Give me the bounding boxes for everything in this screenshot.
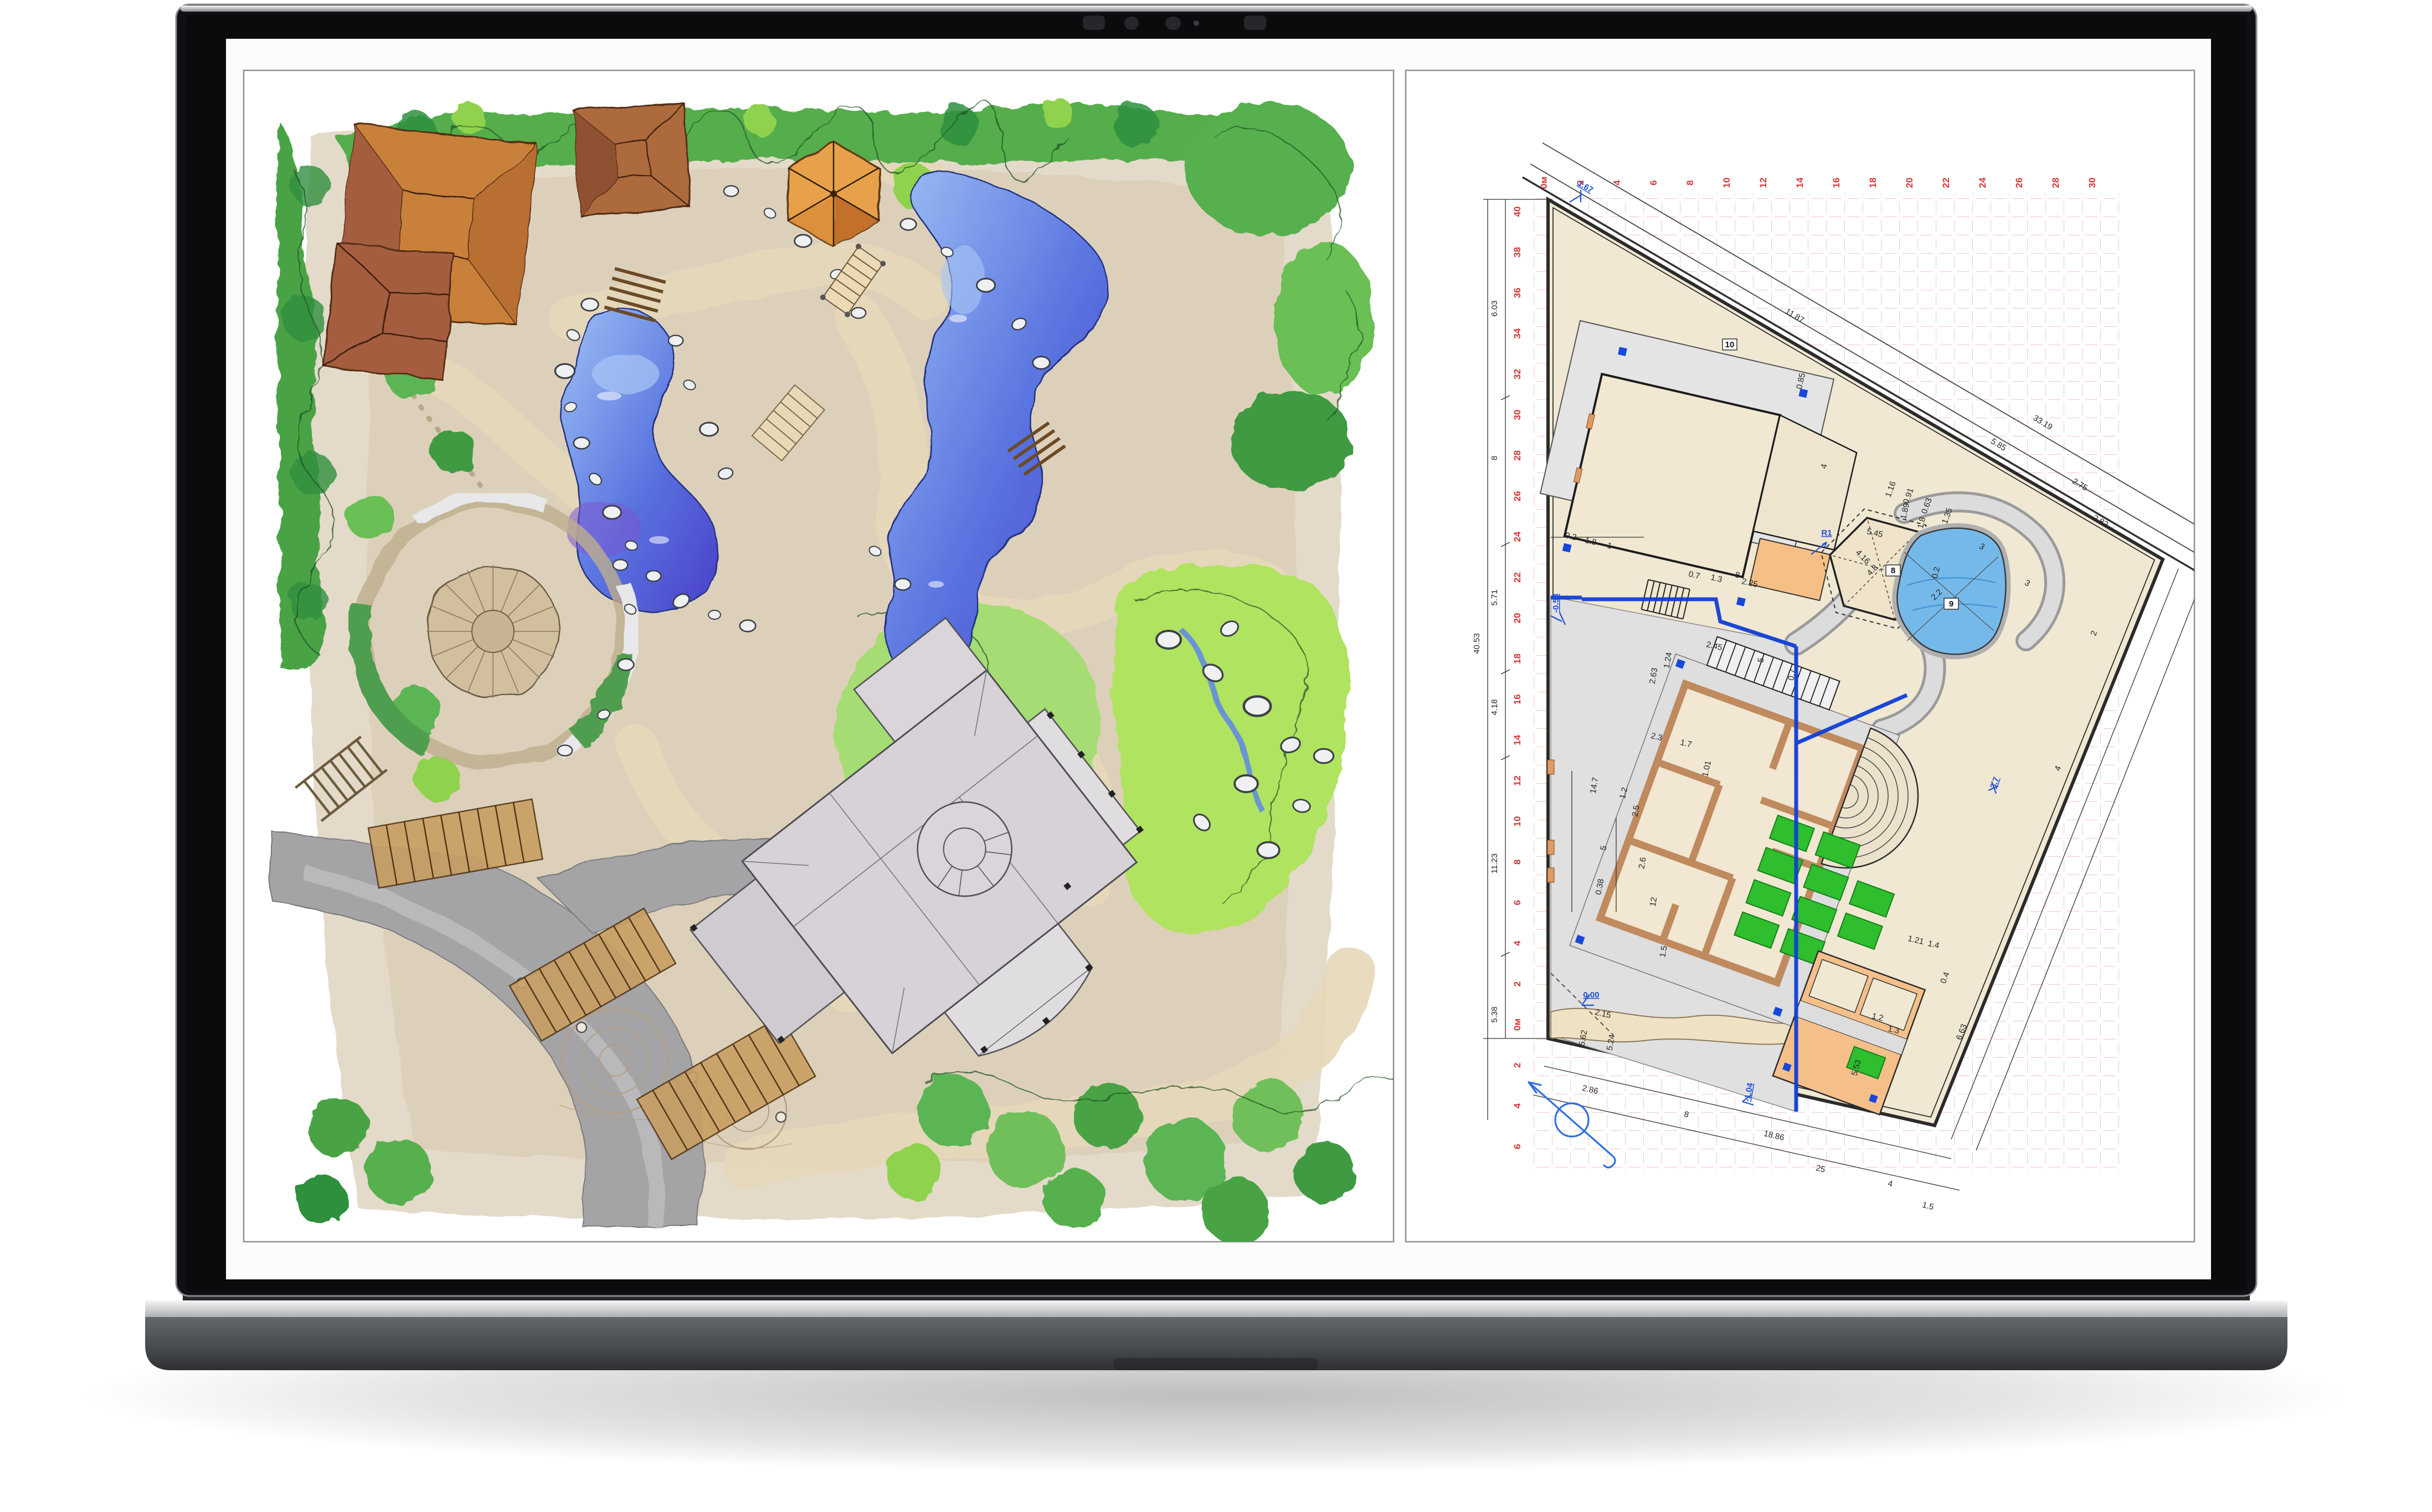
cad-label: 8: [1512, 860, 1523, 865]
cad-label: 8: [1891, 566, 1895, 575]
cad-label: 4: [1512, 940, 1523, 946]
cad-label: 5.38: [1490, 1006, 1499, 1022]
cad-label: 2.5: [1630, 804, 1641, 817]
cad-label: 12: [1512, 775, 1523, 786]
laptop-base-notch: [1113, 1358, 1318, 1370]
cad-label: 16: [1831, 178, 1842, 188]
cad-label: 12: [1758, 178, 1768, 188]
cad-label: 38: [1512, 247, 1523, 258]
cad-label: 12: [1648, 897, 1659, 907]
mockup-canvas: 0м24681012141618202224262830 40383634323…: [0, 0, 2432, 1512]
cad-label: 40: [1512, 207, 1523, 217]
scene-svg: 0м24681012141618202224262830 40383634323…: [0, 0, 2432, 1512]
cad-label: 0.7: [1786, 668, 1797, 681]
cad-label: 6: [1648, 180, 1659, 185]
cad-label: 6.03: [1490, 300, 1499, 316]
cad-label: 8: [1490, 456, 1499, 460]
cad-label: 0м: [1512, 1019, 1523, 1031]
cad-label: 10: [1725, 340, 1735, 349]
cad-label: 10: [1721, 178, 1732, 188]
laptop-base-strip: [145, 1300, 2287, 1317]
cad-label: 22: [1941, 178, 1951, 188]
cad-pool: [1897, 528, 2006, 655]
cad-label: 18: [1868, 178, 1878, 188]
cad-label: 8: [1685, 180, 1695, 185]
cad-label: 30: [1512, 410, 1523, 420]
cad-label: 4: [1612, 180, 1622, 186]
cad-label: 2: [1512, 981, 1523, 986]
cad-label: 11.23: [1490, 853, 1499, 873]
indicator-dot-icon: [1194, 20, 1199, 26]
garden-sketch-panel: [271, 98, 1412, 1243]
sensor-dot-icon: [1124, 17, 1139, 30]
hip-roof-house-small: [573, 103, 691, 215]
cad-label: 9: [1949, 599, 1953, 609]
cad-label: 30: [2087, 178, 2097, 188]
cad-label: 2: [1512, 1063, 1523, 1068]
cad-label: 1.5: [1658, 945, 1669, 958]
cad-label: 18: [1512, 654, 1523, 664]
cad-label: 0м: [1539, 177, 1549, 189]
cad-label: 5.71: [1490, 589, 1499, 605]
cad-label: 16: [1512, 694, 1523, 704]
cad-label: 26: [1512, 491, 1523, 501]
cad-label: 6: [1512, 1144, 1523, 1149]
cad-label: 24: [1512, 531, 1523, 542]
cad-label: 24: [1977, 177, 1988, 188]
cad-label: 32: [1512, 369, 1523, 379]
cad-label: 14: [1512, 734, 1523, 745]
cad-label: 36: [1512, 287, 1523, 298]
cad-label: -0.58: [1551, 594, 1561, 613]
sensor-dot-icon: [1244, 16, 1266, 30]
cad-label: 14: [1795, 177, 1805, 188]
cad-label: 34: [1512, 328, 1523, 338]
cad-label: 40.53: [1472, 633, 1482, 654]
cad-label: 22: [1512, 572, 1523, 583]
cad-label: R1: [1821, 528, 1832, 538]
cad-label: 10: [1512, 816, 1523, 827]
sensor-dot-icon: [1083, 16, 1105, 30]
cad-label: 20: [1512, 613, 1523, 624]
cad-label: 26: [2014, 178, 2024, 188]
cad-label: 4: [1512, 1103, 1523, 1109]
camera-lens-icon: [1165, 17, 1181, 30]
cad-label: 6: [1512, 900, 1523, 905]
screen-top-rim: [181, 6, 2252, 12]
cad-label: 2.6: [1637, 856, 1648, 869]
cad-label: 0.00: [1583, 990, 1599, 1000]
cad-label: 4.18: [1490, 699, 1499, 715]
cad-label: 28: [2050, 178, 2061, 188]
cad-label: 28: [1512, 450, 1523, 461]
cad-label: 20: [1904, 178, 1915, 188]
